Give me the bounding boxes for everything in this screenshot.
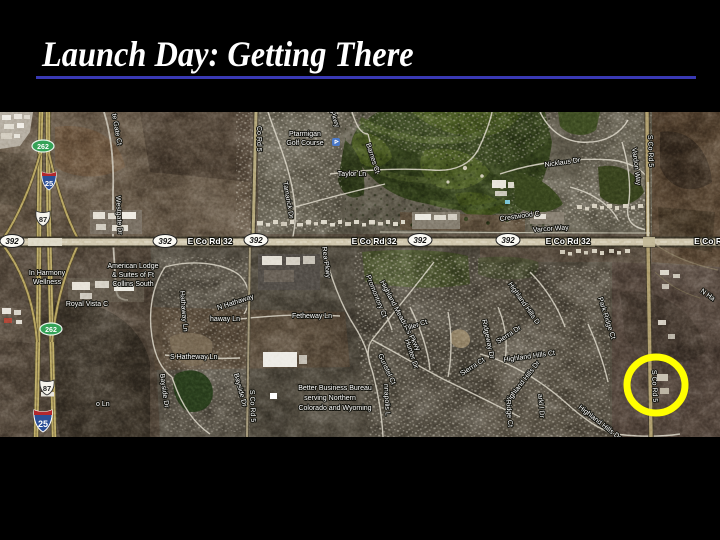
svg-text:87: 87 — [39, 215, 47, 224]
svg-text:Royal Vista C: Royal Vista C — [66, 301, 108, 308]
svg-text:Collins South: Collins South — [112, 281, 153, 288]
svg-text:392: 392 — [501, 236, 515, 245]
svg-text:In Harmony: In Harmony — [29, 270, 66, 277]
svg-text:& Suites of Ft: & Suites of Ft — [112, 272, 154, 279]
svg-text:Golf Course: Golf Course — [286, 140, 323, 147]
svg-text:serving Northern: serving Northern — [304, 395, 356, 402]
svg-text:haway Ln: haway Ln — [210, 316, 240, 323]
svg-text:262: 262 — [37, 144, 49, 151]
svg-text:Taylor Ln: Taylor Ln — [338, 171, 367, 178]
svg-text:E Co Rd 32: E Co Rd 32 — [352, 236, 397, 246]
svg-text:25: 25 — [45, 179, 53, 188]
svg-text:E Co R: E Co R — [694, 236, 720, 246]
svg-text:S Hatheway Ln: S Hatheway Ln — [170, 354, 218, 361]
svg-text:Fetheway Ln: Fetheway Ln — [292, 313, 332, 320]
svg-text:E Co Rd 32: E Co Rd 32 — [188, 236, 233, 246]
svg-text:87: 87 — [43, 384, 51, 393]
svg-text:392: 392 — [413, 236, 427, 245]
svg-text:392: 392 — [249, 236, 263, 245]
svg-text:o Ln: o Ln — [96, 401, 110, 408]
svg-text:262: 262 — [45, 327, 57, 334]
svg-text:Co Rd 5: Co Rd 5 — [255, 126, 262, 152]
svg-text:Colorado and Wyoming: Colorado and Wyoming — [298, 405, 371, 412]
svg-text:American Lodge: American Lodge — [108, 263, 159, 270]
svg-text:392: 392 — [5, 237, 19, 246]
svg-text:Wellness: Wellness — [33, 279, 62, 286]
svg-text:E Co Rd 32: E Co Rd 32 — [546, 236, 591, 246]
svg-text:S Co Rd 5: S Co Rd 5 — [646, 135, 654, 168]
svg-text:392: 392 — [158, 237, 172, 246]
svg-text:25: 25 — [38, 419, 48, 429]
svg-text:Ptarmigan: Ptarmigan — [289, 131, 321, 138]
svg-text:Better Business Bureau: Better Business Bureau — [298, 385, 372, 392]
svg-text:S Co Rd 5: S Co Rd 5 — [248, 390, 256, 423]
svg-text:S Co Rd 5: S Co Rd 5 — [650, 370, 658, 403]
